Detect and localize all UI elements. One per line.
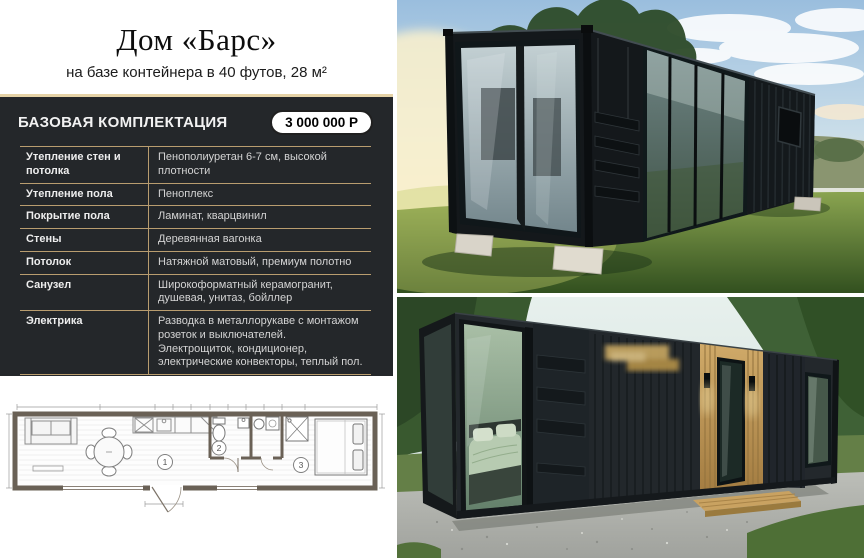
spec-table: Утепление стен и потолка Пенополиуретан … — [20, 146, 371, 375]
table-row: Покрытие пола Ламинат, кварцвинил — [20, 206, 371, 229]
kitchen — [133, 417, 217, 433]
floor-plan-drawing: 1 2 — [5, 402, 386, 520]
photo-column — [397, 0, 864, 558]
spec-value: Пенополиуретан 6-7 см, высокой плотности — [148, 147, 371, 183]
photo-container-exterior-day — [397, 0, 864, 293]
entrance-door — [150, 485, 183, 512]
water-heater — [254, 419, 264, 429]
spec-value: Пеноплекс — [148, 184, 371, 206]
spec-value: Деревянная вагонка — [148, 229, 371, 251]
floor-plan: 1 2 — [0, 402, 393, 525]
container-door-panel — [533, 323, 589, 510]
page-subtitle: на базе контейнера в 40 футов, 28 м² — [0, 64, 393, 81]
spec-value: Натяжной матовый, премиум полотно — [148, 252, 371, 274]
page-title: Дом «Барс» — [0, 22, 393, 58]
room-label-3: 3 — [294, 458, 309, 473]
photo-container-exterior-entrance — [397, 297, 864, 558]
svg-text:2: 2 — [217, 443, 222, 453]
spec-label: Электрика — [20, 311, 148, 374]
slide: Дом «Барс» на базе контейнера в 40 футов… — [0, 0, 864, 558]
right-window — [805, 372, 831, 468]
table-row: Санузел Широкоформатный керамогранит, ду… — [20, 275, 371, 312]
shower — [286, 417, 308, 441]
corrugated-wall — [747, 77, 815, 215]
table-row: Электрика Разводка в металлорукаве с мон… — [20, 311, 371, 375]
table-row: Стены Деревянная вагонка — [20, 229, 371, 252]
spec-panel-title: БАЗОВАЯ КОМПЛЕКТАЦИЯ — [18, 114, 228, 131]
spec-value: Ламинат, кварцвинил — [148, 206, 371, 228]
spec-label: Потолок — [20, 252, 148, 274]
spec-label: Покрытие пола — [20, 206, 148, 228]
bed — [315, 419, 367, 475]
wood-entrance — [700, 343, 763, 494]
washing-machine — [266, 417, 279, 430]
table-row: Утепление стен и потолка Пенополиуретан … — [20, 147, 371, 184]
spec-panel: БАЗОВАЯ КОМПЛЕКТАЦИЯ 3 000 000 Р Утеплен… — [0, 94, 393, 376]
svg-text:1: 1 — [163, 457, 168, 467]
price-badge: 3 000 000 Р — [270, 110, 373, 135]
spec-value: Широкоформатный керамогранит, душевая, у… — [148, 275, 371, 311]
spec-panel-header: БАЗОВАЯ КОМПЛЕКТАЦИЯ 3 000 000 Р — [0, 97, 393, 139]
sofa — [25, 418, 77, 444]
spec-label: Утепление пола — [20, 184, 148, 206]
room-label-1: 1 — [158, 455, 173, 470]
side-window — [778, 107, 801, 147]
spec-label: Санузел — [20, 275, 148, 311]
info-column: Дом «Барс» на базе контейнера в 40 футов… — [0, 0, 393, 558]
corrugated-wall-right — [763, 351, 805, 488]
svg-text:3: 3 — [299, 460, 304, 470]
container-door-louvers — [589, 30, 643, 247]
bedroom-window — [459, 319, 527, 516]
spec-value: Разводка в металлорукаве с монтажом розе… — [148, 311, 371, 374]
table-row: Утепление пола Пеноплекс — [20, 184, 371, 207]
spec-label: Утепление стен и потолка — [20, 147, 148, 183]
table-row: Потолок Натяжной матовый, премиум полотн… — [20, 252, 371, 275]
corrugated-wall — [589, 330, 700, 506]
spec-label: Стены — [20, 229, 148, 251]
glass-end-wall — [447, 30, 589, 247]
end-glass — [424, 324, 453, 505]
bifold-glass-doors — [643, 45, 749, 242]
